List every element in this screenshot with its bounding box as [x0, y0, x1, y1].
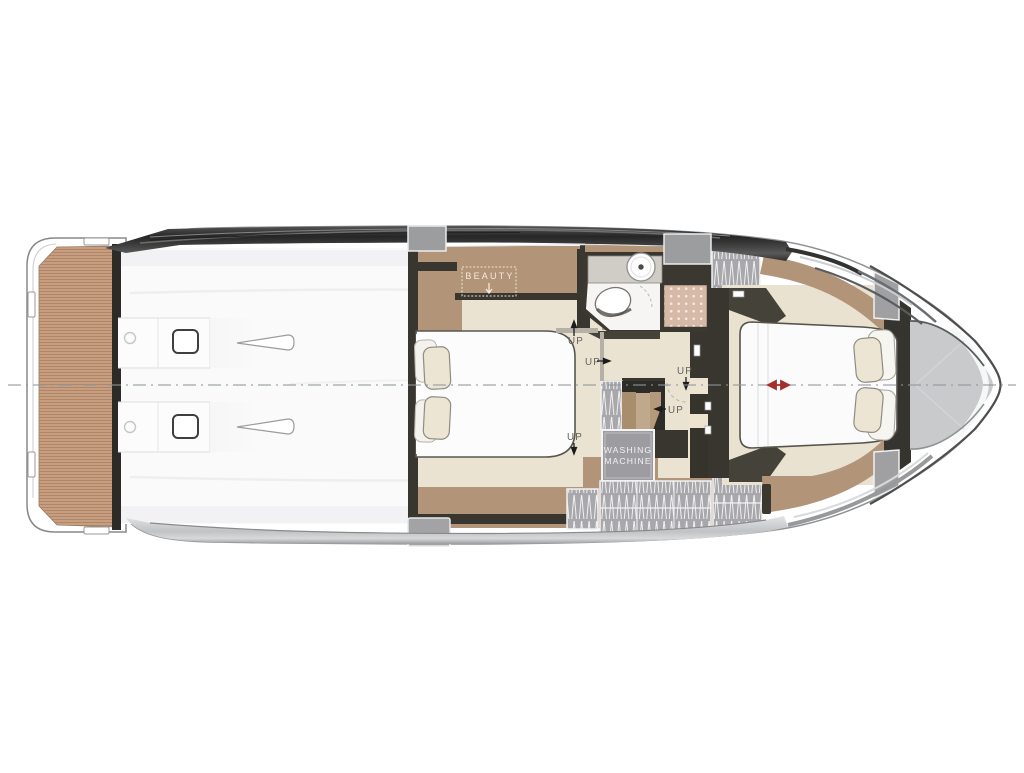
svg-text:UP: UP	[585, 357, 601, 368]
svg-text:UP: UP	[567, 432, 583, 443]
svg-text:UP: UP	[668, 405, 684, 416]
svg-text:BEAUTY: BEAUTY	[465, 271, 514, 281]
svg-text:UP: UP	[568, 336, 584, 347]
svg-text:MACHINE: MACHINE	[604, 456, 651, 466]
svg-text:UP: UP	[677, 366, 693, 377]
svg-text:WASHING: WASHING	[604, 445, 652, 455]
